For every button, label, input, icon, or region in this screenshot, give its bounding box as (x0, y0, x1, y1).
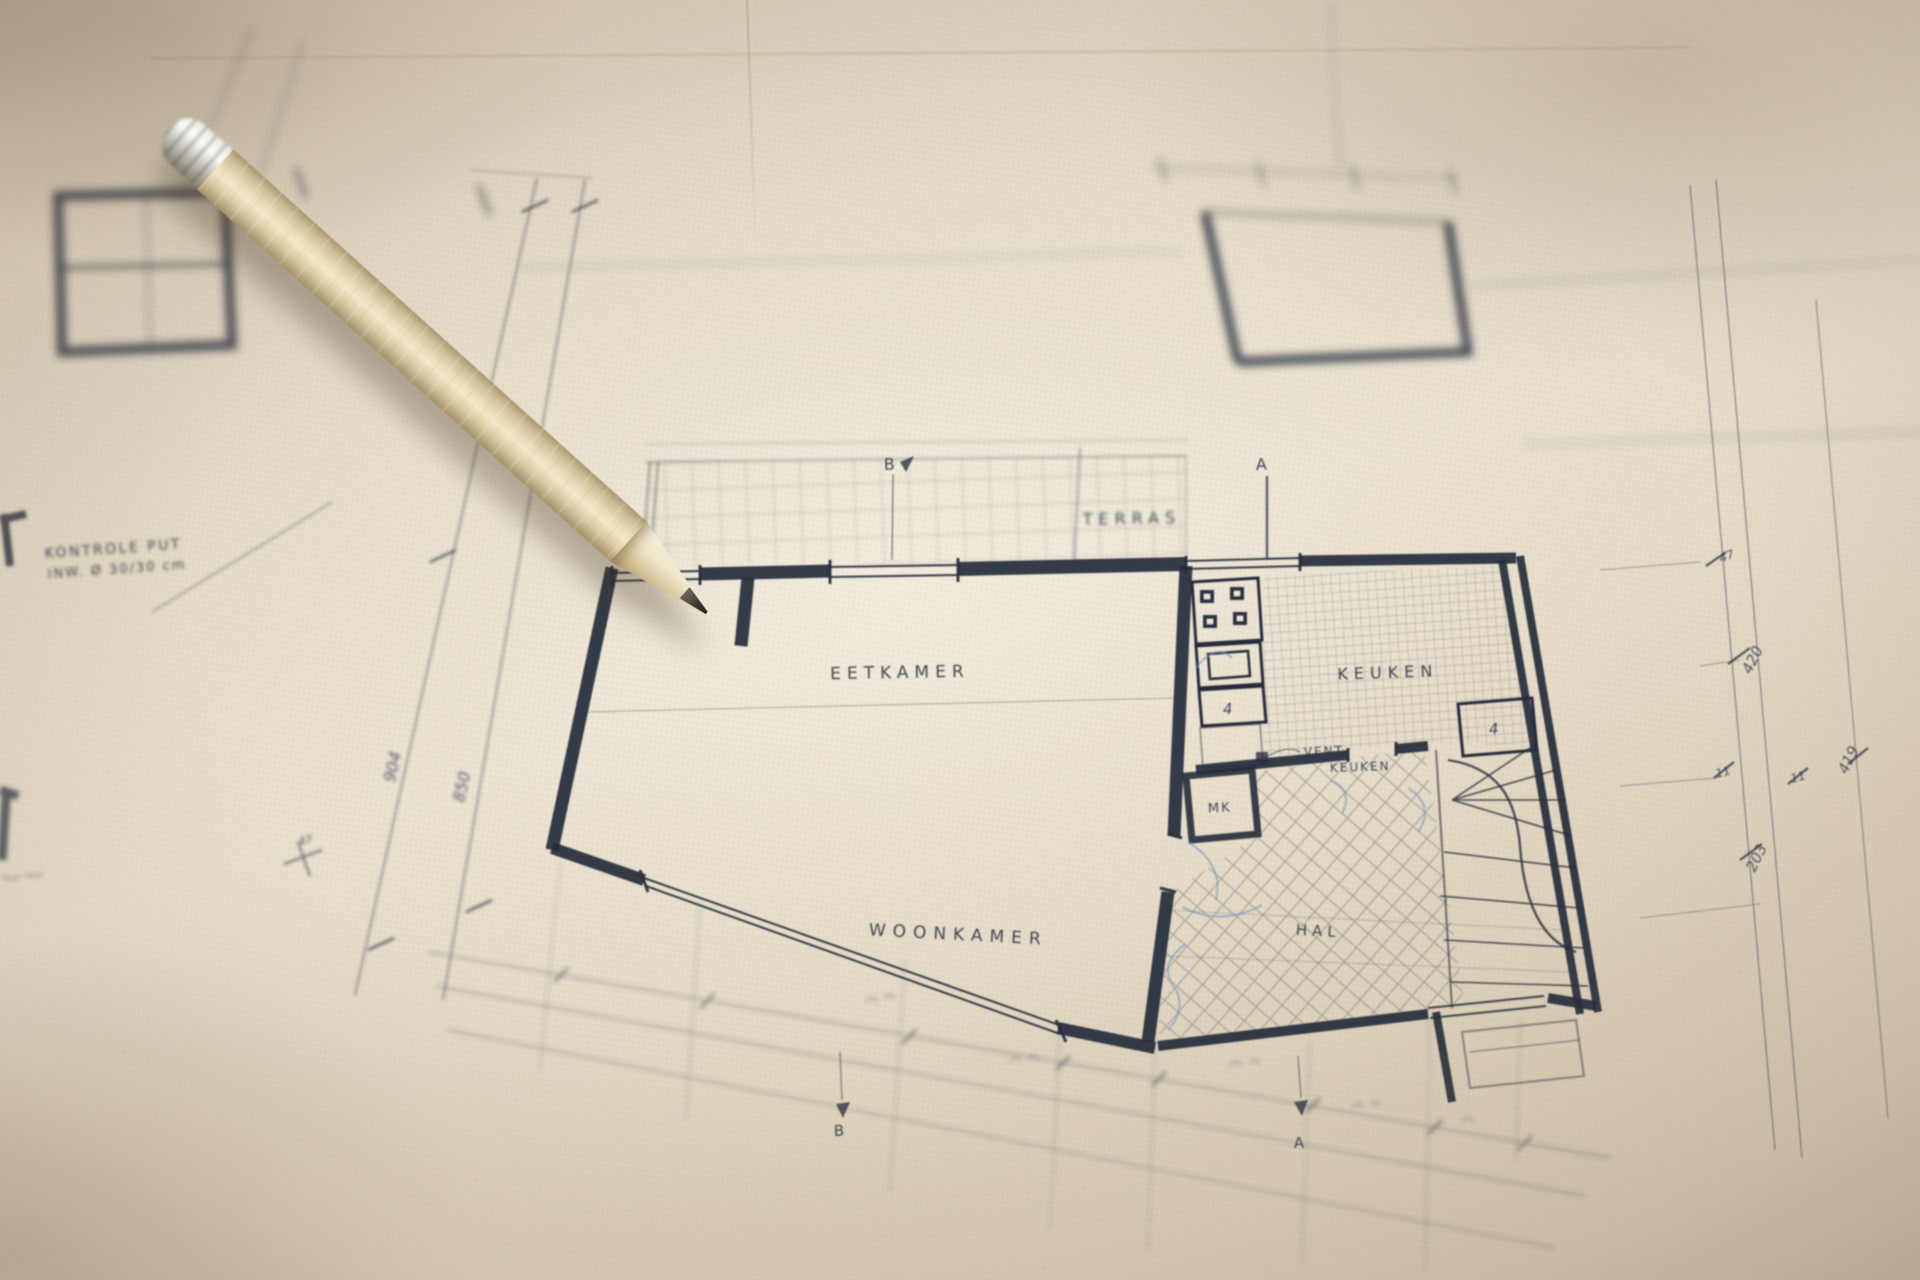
dimension-904: 904 (380, 750, 405, 784)
hall-tiles (1160, 748, 1465, 1044)
section-b-top: B (883, 455, 895, 474)
section-a-top: A (1255, 455, 1267, 474)
note-line2: INW. Ø 30/30 cm (47, 557, 187, 582)
section-b-bottom: B (834, 1122, 845, 1140)
room-divider-line (586, 698, 1176, 712)
room-label-woonkamer: WOONKAMER (868, 920, 1048, 949)
terrace: TERRAS (640, 440, 1188, 566)
room-label-eetkamer: EETKAMER (830, 662, 970, 684)
left-dimensions: 904 850 47 KONTROLE PUT INW. Ø 30/30 cm (0, 170, 598, 1000)
dimension-419: 419 (1834, 743, 1863, 777)
kitchen-counter (1192, 578, 1268, 768)
top-right-garage (1152, 0, 1468, 362)
mk-label: MK (1208, 800, 1233, 816)
vent-label-line1: VENT. (1304, 743, 1349, 759)
room-label-terras: TERRAS (1081, 508, 1181, 529)
stove-burners (1200, 587, 1247, 628)
stair-marker-4: 4 (1488, 720, 1499, 739)
dimension-203: 203 (1742, 841, 1771, 875)
dimension-47-left: 47 (297, 833, 313, 848)
vent-label-line2: KEUKEN (1330, 759, 1391, 775)
front-door (1428, 996, 1584, 1102)
dimension-47-right: 47 (1717, 547, 1736, 566)
right-dimensions: 47 420 11 11 203 419 (1600, 180, 1888, 1158)
sink-outline (1196, 642, 1263, 688)
vent-symbol (1256, 752, 1268, 764)
stove-outline (1192, 578, 1262, 644)
photo-of-blueprint: TERRAS 904 850 47 KONTROLE PUT INW. Ø 30… (0, 0, 1920, 1280)
kontrole-put-note: KONTROLE PUT INW. Ø 30/30 cm (0, 502, 332, 612)
dimension-420: 420 (1738, 643, 1767, 677)
floor-plan-drawing: TERRAS 904 850 47 KONTROLE PUT INW. Ø 30… (0, 0, 1920, 1280)
room-label-hal: HAL (1295, 921, 1341, 941)
dimension-850: 850 (449, 770, 474, 804)
counter-marker-4: 4 (1222, 700, 1233, 719)
top-left-building-walls (58, 192, 232, 352)
room-label-keuken: KEUKEN (1337, 661, 1438, 684)
background-buildings (58, 0, 1920, 444)
